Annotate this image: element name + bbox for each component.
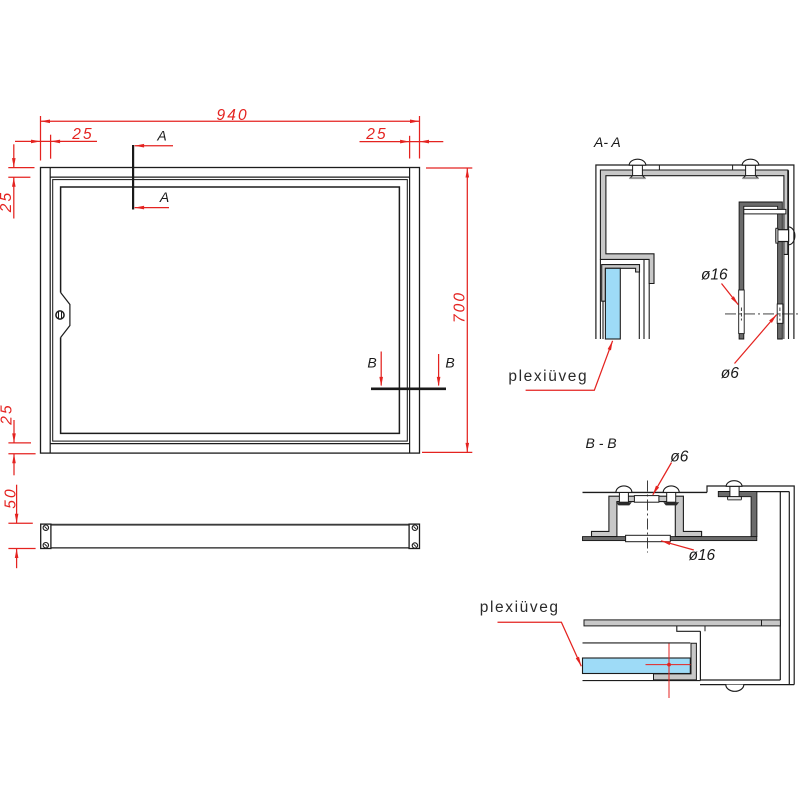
- svg-text:plexiüveg: plexiüveg: [508, 368, 588, 385]
- svg-text:B: B: [445, 355, 454, 371]
- svg-text:ø6: ø6: [721, 365, 739, 382]
- svg-text:700: 700: [452, 291, 469, 323]
- svg-text:ø16: ø16: [701, 267, 728, 284]
- svg-text:A- A: A- A: [593, 134, 621, 150]
- svg-text:50: 50: [3, 487, 20, 508]
- svg-text:940: 940: [217, 107, 249, 124]
- svg-text:25: 25: [71, 126, 93, 143]
- svg-text:B: B: [367, 355, 376, 371]
- svg-text:25: 25: [0, 403, 16, 425]
- svg-text:plexiüveg: plexiüveg: [480, 599, 560, 616]
- svg-text:A: A: [156, 127, 166, 143]
- svg-text:B - B: B - B: [586, 435, 617, 451]
- svg-text:25: 25: [365, 126, 387, 143]
- svg-text:25: 25: [0, 191, 15, 213]
- svg-text:A: A: [159, 189, 169, 205]
- svg-text:ø6: ø6: [670, 449, 688, 466]
